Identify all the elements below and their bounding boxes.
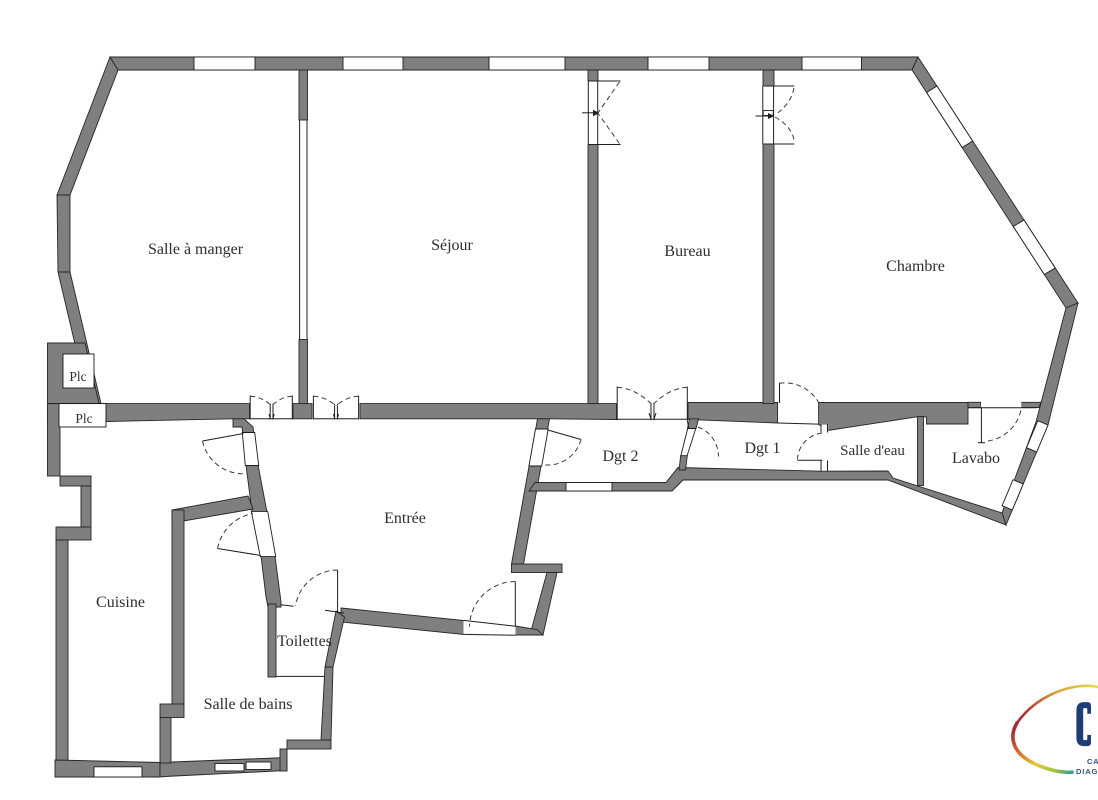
svg-text:Plc: Plc [69,369,86,384]
svg-text:Bureau: Bureau [664,243,710,260]
svg-text:Séjour: Séjour [431,237,473,254]
svg-text:Toilettes: Toilettes [277,633,332,650]
svg-text:Plc: Plc [75,411,92,426]
svg-text:Lavabo: Lavabo [952,450,1000,467]
svg-text:Cuisine: Cuisine [96,594,145,611]
svg-text:Dgt 1: Dgt 1 [745,440,781,457]
svg-text:Salle d'eau: Salle d'eau [840,443,905,459]
svg-text:Chambre: Chambre [886,258,945,275]
svg-text:Salle de bains: Salle de bains [204,696,293,713]
svg-text:CAB: CAB [1087,757,1098,766]
svg-text:Entrée: Entrée [384,510,426,527]
svg-text:Dgt 2: Dgt 2 [603,448,639,465]
svg-text:DIAGN: DIAGN [1076,767,1098,776]
svg-text:Salle à manger: Salle à manger [148,241,244,258]
